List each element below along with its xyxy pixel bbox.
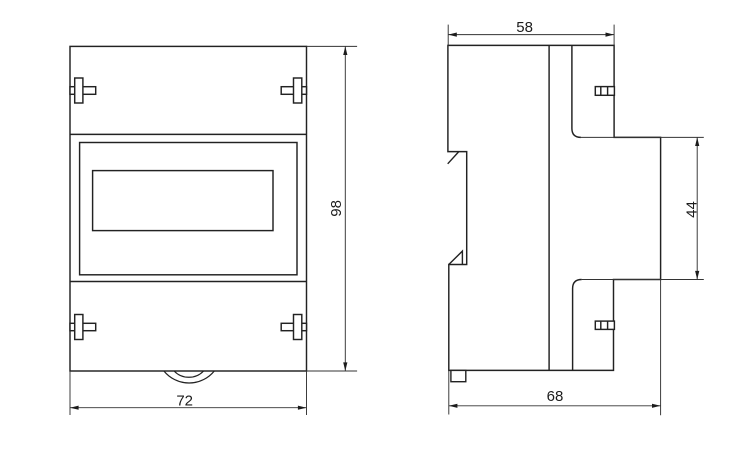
svg-text:58: 58: [516, 19, 533, 36]
svg-text:44: 44: [684, 201, 701, 218]
svg-text:98: 98: [328, 200, 345, 217]
svg-text:68: 68: [547, 388, 564, 405]
svg-text:72: 72: [176, 392, 193, 409]
